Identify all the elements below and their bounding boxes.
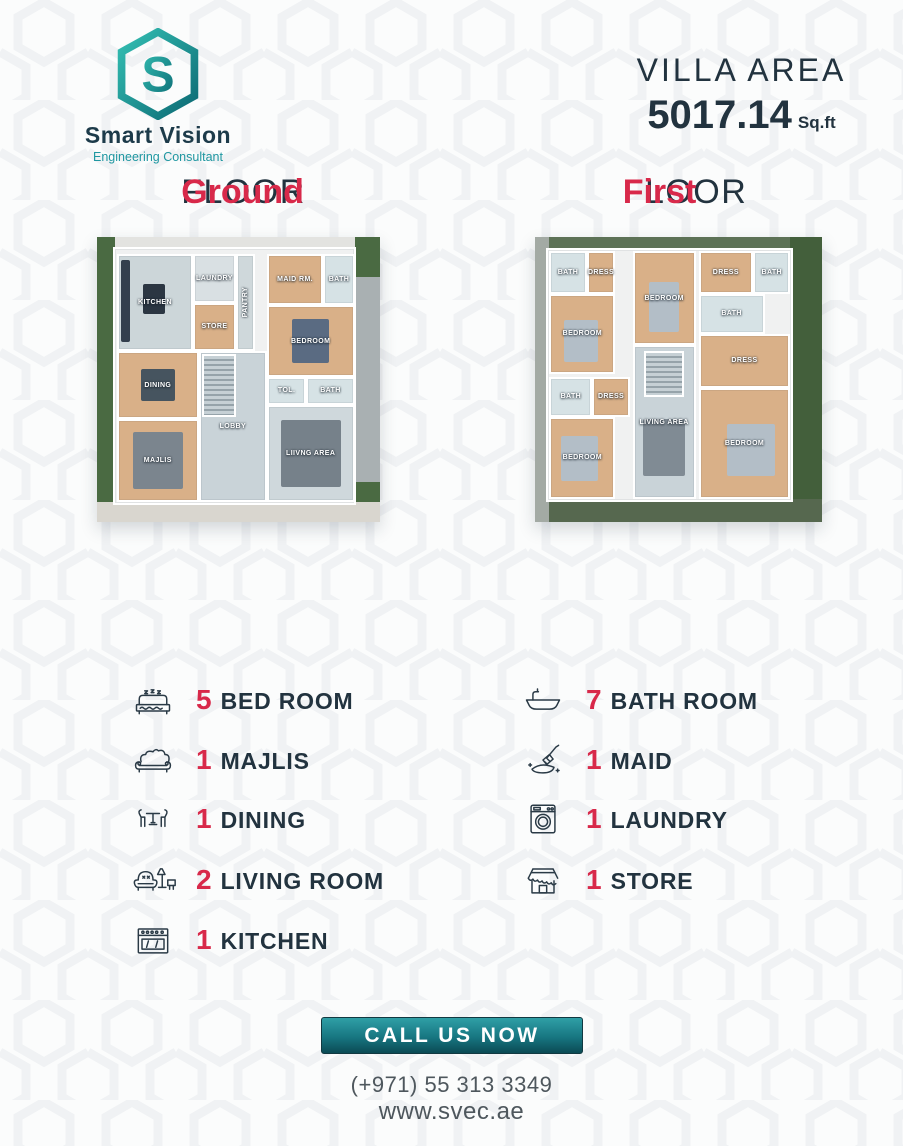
bed-icon <box>128 676 178 724</box>
furniture-accent <box>727 424 775 475</box>
feature-label: STORE <box>611 868 694 895</box>
furniture-accent <box>564 320 598 362</box>
room-label: DRESS <box>713 269 739 276</box>
furniture-accent <box>649 282 679 332</box>
feature-label: BATH ROOM <box>611 688 758 715</box>
first-floor-title: First FLOOR <box>540 170 830 214</box>
room-bedroom-br: BEDROOM <box>699 388 791 499</box>
feature-label: MAID <box>611 748 673 775</box>
room-store: STORE <box>193 303 235 351</box>
room-label: BATH <box>761 269 782 276</box>
brand-block: S Smart Vision Engineering Consultant <box>48 28 268 164</box>
room-label: LAUNDRY <box>196 275 233 282</box>
room-label: LOBBY <box>220 423 247 430</box>
path-bottom <box>97 502 380 522</box>
feature-bed-room: 5 BED ROOM <box>128 676 353 724</box>
brand-name: Smart Vision <box>48 122 268 149</box>
feature-label: LIVING ROOM <box>221 868 384 895</box>
feature-count: 1 <box>586 803 602 835</box>
svg-text:S: S <box>141 46 174 102</box>
feature-count: 1 <box>196 803 212 835</box>
store-icon <box>518 856 568 904</box>
room-kitchen: KITCHEN <box>117 254 193 351</box>
feature-count: 5 <box>196 684 212 716</box>
feature-label: DINING <box>221 807 306 834</box>
brand-tagline: Engineering Consultant <box>48 150 268 164</box>
feature-label: MAJLIS <box>221 748 310 775</box>
room-bedroom-tm: BEDROOM <box>633 251 696 345</box>
maid-icon <box>518 736 568 784</box>
ground-floor-title: Ground FLOOR <box>97 170 390 214</box>
first-floor-title-accent: First <box>623 170 697 214</box>
stairs <box>202 354 236 417</box>
garden-right-top <box>355 237 380 277</box>
stairs <box>644 351 684 397</box>
path-right <box>355 237 380 522</box>
room-laundry: LAUNDRY <box>193 254 235 302</box>
room-label: BATH <box>561 393 582 400</box>
room-label: MAID RM. <box>277 276 313 283</box>
room-label: DRESS <box>598 393 624 400</box>
stove-icon <box>128 916 178 964</box>
feature-count: 7 <box>586 684 602 716</box>
feature-count: 1 <box>586 864 602 896</box>
villa-area-label: VILLA AREA <box>600 52 883 89</box>
garden-bottom <box>535 499 822 522</box>
room-label: LIVING AREA <box>640 419 689 426</box>
garden-right <box>790 237 822 522</box>
feature-store: 1 STORE <box>518 856 693 904</box>
room-bath-tl: BATH <box>549 251 586 294</box>
armchair-icon <box>128 856 178 904</box>
room-bedroom: BEDROOM <box>267 305 355 376</box>
feature-maid: 1 MAID <box>518 736 673 784</box>
room-bath-mid: BATH <box>306 377 354 406</box>
furniture-accent <box>121 260 130 342</box>
feature-bath-room: 7 BATH ROOM <box>518 676 758 724</box>
room-maid: MAID RM. <box>267 254 324 305</box>
room-dining: DINING <box>117 351 199 419</box>
feature-count: 1 <box>196 744 212 776</box>
dining-icon <box>128 795 178 843</box>
room-label: DRESS <box>731 357 757 364</box>
feature-living-room: 2 LIVING ROOM <box>128 856 384 904</box>
room-bath-ml: BATH <box>549 377 592 417</box>
room-label: BEDROOM <box>644 295 683 302</box>
villa-area-unit: Sq.ft <box>798 113 836 133</box>
room-bedroom-bl: BEDROOM <box>549 417 615 500</box>
room-label: KITCHEN <box>138 299 172 306</box>
furniture-accent <box>643 419 684 476</box>
room-living: LIIVNG AREA <box>267 405 355 502</box>
feature-count: 1 <box>196 924 212 956</box>
room-label: BEDROOM <box>563 330 602 337</box>
room-bath-top: BATH <box>323 254 354 305</box>
room-label: DINING <box>144 382 171 389</box>
room-bath-tr: BATH <box>753 251 790 294</box>
villa-flyer-page: S Smart Vision Engineering Consultant VI… <box>0 0 903 1146</box>
villa-area-block: VILLA AREA 5017.14 Sq.ft <box>600 52 883 138</box>
call-us-now-button[interactable]: CALL US NOW <box>321 1017 583 1054</box>
room-label: BEDROOM <box>725 440 764 447</box>
ground-floor-title-accent: Ground <box>181 170 304 214</box>
room-bath-r: BATH <box>699 294 765 334</box>
ground-floor-plan: KITCHENLAUNDRYSTOREPANTRYMAID RM.BATHBED… <box>97 237 380 522</box>
washing-machine-icon <box>518 795 568 843</box>
room-label: PANTRY <box>242 287 249 317</box>
bathtub-icon <box>518 676 568 724</box>
feature-label: LAUNDRY <box>611 807 728 834</box>
room-label: TOL. <box>278 387 295 394</box>
feature-majlis: 1 MAJLIS <box>128 736 310 784</box>
feature-kitchen: 1 KITCHEN <box>128 916 328 964</box>
room-label: MAJLIS <box>144 457 172 464</box>
room-label: BATH <box>558 269 579 276</box>
feature-label: BED ROOM <box>221 688 354 715</box>
contact-website: www.svec.ae <box>0 1098 903 1126</box>
first-floor-plan: BATHDRESSBEDROOMBEDROOMDRESSBATHBATHDRES… <box>535 237 822 522</box>
room-label: STORE <box>201 323 227 330</box>
room-label: BATH <box>329 276 350 283</box>
room-pantry: PANTRY <box>236 254 256 351</box>
room-tol: TOL. <box>267 377 307 406</box>
feature-count: 1 <box>586 744 602 776</box>
room-label: DRESS <box>588 269 614 276</box>
room-dress-tr: DRESS <box>699 251 754 294</box>
room-bedroom-l: BEDROOM <box>549 294 615 374</box>
room-dress-tl: DRESS <box>587 251 616 294</box>
room-label: LIIVNG AREA <box>286 450 335 457</box>
smart-vision-logo-icon: S <box>110 28 206 120</box>
room-label: BATH <box>320 387 341 394</box>
room-dress-r: DRESS <box>699 334 791 388</box>
villa-area-value: 5017.14 <box>647 93 792 138</box>
feature-label: KITCHEN <box>221 928 329 955</box>
room-label: BEDROOM <box>563 454 602 461</box>
room-label: BEDROOM <box>291 338 330 345</box>
sofa-icon <box>128 736 178 784</box>
room-label: BATH <box>721 310 742 317</box>
feature-count: 2 <box>196 864 212 896</box>
feature-laundry: 1 LAUNDRY <box>518 795 728 843</box>
feature-dining: 1 DINING <box>128 795 306 843</box>
contact-phone: (+971) 55 313 3349 <box>0 1072 903 1098</box>
room-majlis: MAJLIS <box>117 419 199 502</box>
room-dress-ml: DRESS <box>592 377 629 417</box>
